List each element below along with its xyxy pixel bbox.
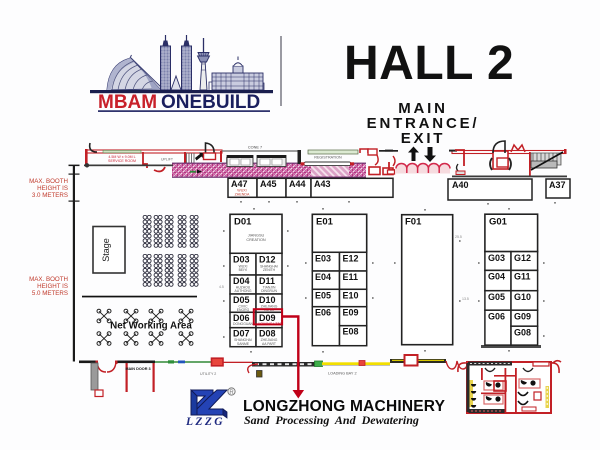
svg-text:4.5: 4.5 bbox=[219, 285, 224, 289]
svg-text:A37: A37 bbox=[549, 180, 566, 190]
svg-text:SANME: SANME bbox=[237, 342, 250, 346]
svg-text:DINGRUN: DINGRUN bbox=[261, 289, 277, 293]
svg-text:D05: D05 bbox=[233, 295, 250, 305]
svg-text:G04: G04 bbox=[488, 272, 505, 282]
svg-text:25.5: 25.5 bbox=[455, 235, 462, 239]
svg-text:E12: E12 bbox=[343, 254, 359, 264]
svg-text:A44: A44 bbox=[289, 179, 306, 189]
svg-text:G12: G12 bbox=[514, 253, 531, 263]
svg-text:AA PART: AA PART bbox=[262, 342, 276, 346]
svg-text:A40: A40 bbox=[452, 180, 469, 190]
svg-text:UPLIFT: UPLIFT bbox=[161, 158, 174, 162]
svg-text:G01: G01 bbox=[489, 217, 508, 228]
svg-text:D01: D01 bbox=[234, 217, 252, 228]
svg-text:3.0 METERS: 3.0 METERS bbox=[32, 192, 68, 199]
svg-text:D08: D08 bbox=[259, 329, 276, 339]
svg-text:E06: E06 bbox=[315, 308, 331, 318]
svg-text:5.0 METERS: 5.0 METERS bbox=[32, 290, 68, 297]
svg-text:A45: A45 bbox=[260, 179, 277, 189]
svg-text:CONE 7: CONE 7 bbox=[248, 146, 262, 150]
svg-text:AUTHONG: AUTHONG bbox=[235, 289, 252, 293]
svg-text:D04: D04 bbox=[233, 276, 250, 286]
svg-text:E03: E03 bbox=[315, 254, 331, 264]
svg-text:D10: D10 bbox=[259, 295, 276, 305]
svg-text:E04: E04 bbox=[315, 272, 331, 282]
svg-text:F01: F01 bbox=[405, 217, 422, 228]
svg-text:CREATION: CREATION bbox=[246, 238, 266, 242]
svg-text:E08: E08 bbox=[343, 327, 359, 337]
svg-text:ZENITH: ZENITH bbox=[263, 268, 276, 272]
svg-text:REGISTRATION: REGISTRATION bbox=[314, 155, 342, 159]
svg-text:D07: D07 bbox=[233, 329, 250, 339]
svg-text:13.5: 13.5 bbox=[462, 297, 469, 301]
svg-text:MAIN DOOR 3: MAIN DOOR 3 bbox=[125, 367, 150, 371]
svg-text:UTILITY 2: UTILITY 2 bbox=[200, 372, 216, 376]
svg-text:E05: E05 bbox=[315, 290, 331, 300]
svg-text:E11: E11 bbox=[343, 272, 359, 282]
svg-text:DONGGUAN: DONGGUAN bbox=[233, 322, 254, 326]
svg-text:HEIGHT IS: HEIGHT IS bbox=[37, 283, 68, 290]
svg-text:D11: D11 bbox=[259, 276, 275, 286]
svg-text:G09: G09 bbox=[514, 311, 531, 321]
svg-text:E01: E01 bbox=[316, 217, 334, 228]
svg-text:SERVICE ROOM: SERVICE ROOM bbox=[108, 159, 136, 163]
svg-text:A43: A43 bbox=[314, 179, 331, 189]
svg-text:G10: G10 bbox=[514, 292, 531, 302]
svg-text:LZZG: LZZG bbox=[185, 416, 225, 426]
svg-text:MAX. BOOTH: MAX. BOOTH bbox=[29, 276, 68, 283]
svg-text:ZHENDA: ZHENDA bbox=[235, 193, 250, 197]
svg-text:D12: D12 bbox=[259, 255, 276, 265]
svg-text:G03: G03 bbox=[488, 253, 505, 263]
svg-text:ENGRG: ENGRG bbox=[237, 308, 250, 312]
svg-text:A47: A47 bbox=[231, 179, 248, 189]
svg-text:G06: G06 bbox=[488, 311, 505, 321]
svg-text:D03: D03 bbox=[233, 255, 250, 265]
svg-text:LOADING BAY 2: LOADING BAY 2 bbox=[328, 372, 357, 376]
svg-text:R: R bbox=[229, 390, 234, 396]
svg-text:E09: E09 bbox=[343, 308, 359, 318]
svg-text:MAX. BOOTH: MAX. BOOTH bbox=[29, 178, 68, 185]
svg-text:JIANGSU: JIANGSU bbox=[248, 234, 265, 238]
svg-text:E10: E10 bbox=[343, 290, 359, 300]
svg-text:Net Working Area: Net Working Area bbox=[110, 321, 192, 332]
svg-text:BEIYI: BEIYI bbox=[239, 268, 248, 272]
svg-text:HEIGHT IS: HEIGHT IS bbox=[37, 185, 68, 192]
svg-text:G08: G08 bbox=[514, 327, 531, 337]
svg-text:G11: G11 bbox=[514, 272, 531, 282]
svg-text:Stage: Stage bbox=[101, 238, 111, 262]
svg-text:G05: G05 bbox=[488, 292, 505, 302]
